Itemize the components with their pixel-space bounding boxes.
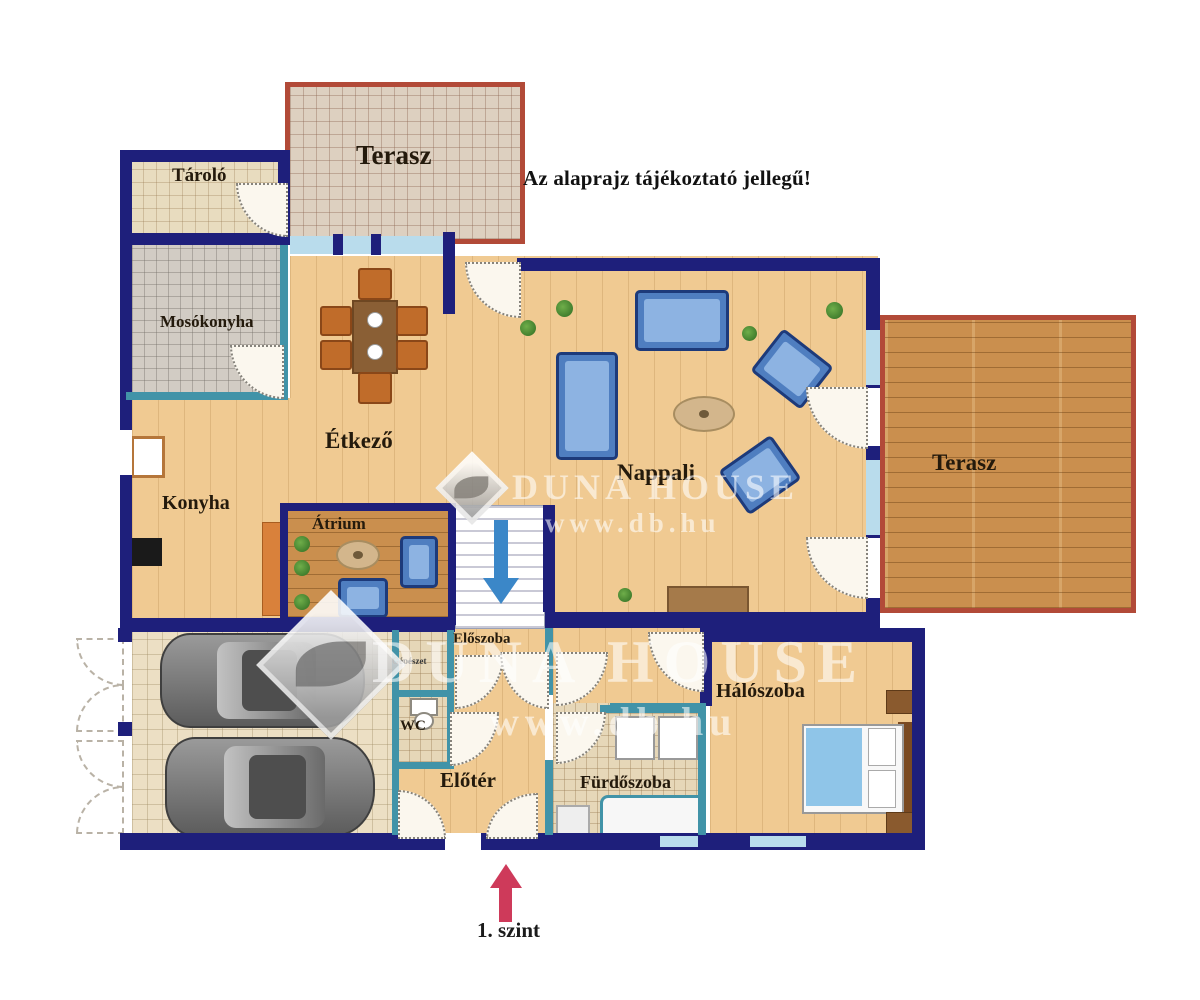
dining-chair bbox=[358, 268, 392, 300]
wall-bedroom-top bbox=[700, 628, 925, 642]
room-label-atrium: Átrium bbox=[312, 514, 366, 534]
bed-blanket bbox=[806, 728, 862, 806]
wall-living-bottom bbox=[545, 612, 880, 628]
plant bbox=[294, 560, 310, 576]
room-label-wc: WC bbox=[400, 718, 426, 735]
floor-plan: Az alaprajz tájékoztató jellegű! Terasz … bbox=[0, 0, 1200, 1000]
terrace-right-floor bbox=[880, 315, 1136, 613]
wall-top-main bbox=[517, 258, 880, 271]
room-label-terrace-top: Terasz bbox=[356, 140, 432, 171]
room-label-hallway: Előszoba bbox=[453, 631, 511, 648]
atrium-chair-seat bbox=[409, 545, 429, 579]
mech-wc-overlay bbox=[398, 632, 448, 762]
garage-door-swing bbox=[76, 638, 124, 686]
room-label-foyer: Előtér bbox=[440, 768, 496, 793]
window-living-right bbox=[866, 460, 880, 535]
stove bbox=[132, 538, 162, 566]
window-band-terrace bbox=[290, 236, 443, 254]
room-label-laundry: Mosókonyha bbox=[160, 312, 254, 332]
sofa-seat bbox=[565, 361, 609, 451]
kitchen-counter bbox=[262, 522, 282, 616]
wall-bath-right bbox=[698, 703, 706, 835]
room-label-dining: Étkező bbox=[325, 428, 393, 454]
wall-foyer-right-lower bbox=[545, 760, 553, 835]
plant bbox=[294, 594, 310, 610]
plate bbox=[367, 312, 383, 328]
garage-post bbox=[118, 722, 132, 736]
room-label-bedroom: Hálószoba bbox=[716, 680, 805, 703]
nightstand bbox=[886, 690, 914, 714]
bath-sink bbox=[615, 716, 655, 760]
wall-bedroom-right bbox=[912, 628, 925, 850]
atrium-chair bbox=[400, 536, 438, 588]
window-bottom bbox=[750, 836, 806, 847]
plate bbox=[367, 344, 383, 360]
dining-chair bbox=[320, 306, 352, 336]
window-living-right bbox=[866, 330, 880, 385]
wall-mech-wc-divider bbox=[392, 690, 454, 697]
stairs-down-arrow-head bbox=[483, 578, 519, 604]
plant bbox=[618, 588, 632, 602]
dining-chair bbox=[320, 340, 352, 370]
level-arrow-stem bbox=[499, 886, 512, 922]
wall-stairs-right bbox=[543, 505, 555, 612]
pillow bbox=[868, 770, 896, 808]
pillow bbox=[868, 728, 896, 766]
door-opening-right bbox=[866, 538, 880, 598]
room-label-bathroom: Fürdőszoba bbox=[580, 772, 671, 793]
wall-storage-top bbox=[120, 150, 290, 162]
level-label: 1. szint bbox=[477, 918, 540, 943]
room-label-storage: Tároló bbox=[172, 165, 227, 187]
sofa-seat bbox=[644, 299, 720, 342]
entry-opening bbox=[445, 833, 481, 850]
coffee-table bbox=[673, 396, 735, 432]
room-label-terrace-right: Terasz bbox=[932, 450, 996, 476]
dining-chair bbox=[396, 340, 428, 370]
brand-logo-swoosh bbox=[455, 476, 489, 498]
window-mullion bbox=[333, 234, 343, 255]
atrium-wall-top bbox=[280, 503, 456, 511]
atrium-wall-right bbox=[448, 503, 456, 625]
plant bbox=[556, 300, 573, 317]
dining-table bbox=[352, 300, 398, 374]
atrium-chair-seat bbox=[347, 587, 379, 609]
atrium-wall-left bbox=[280, 503, 288, 625]
wall-storage-divider bbox=[120, 233, 290, 245]
plant bbox=[294, 536, 310, 552]
level-arrow-head bbox=[490, 864, 522, 888]
plant bbox=[826, 302, 843, 319]
disclaimer-note: Az alaprajz tájékoztató jellegű! bbox=[523, 166, 811, 191]
room-label-living: Nappali bbox=[617, 460, 695, 486]
car bbox=[165, 737, 375, 837]
kitchen-sink bbox=[131, 436, 165, 478]
bath-sink bbox=[658, 716, 698, 760]
garage-door-swing bbox=[76, 684, 124, 732]
atrium-table bbox=[336, 540, 380, 570]
window-mullion bbox=[371, 234, 381, 255]
plant bbox=[742, 326, 757, 341]
brand-logo-swoosh bbox=[296, 641, 366, 686]
room-label-kitchen: Konyha bbox=[162, 492, 230, 515]
garage-door-swing bbox=[76, 786, 124, 834]
wall-bath-top bbox=[610, 703, 703, 711]
dining-chair bbox=[396, 306, 428, 336]
table-center bbox=[699, 410, 709, 418]
dining-chair bbox=[358, 372, 392, 404]
wall-post-terrace bbox=[443, 232, 455, 314]
door-opening-right bbox=[866, 388, 880, 446]
sofa-large bbox=[635, 290, 729, 351]
window-bottom bbox=[660, 836, 698, 847]
sofa-side bbox=[556, 352, 618, 460]
garage-door-swing bbox=[76, 740, 124, 788]
table-center bbox=[353, 551, 363, 559]
stairs-down-arrow bbox=[494, 520, 508, 580]
kitchen-window-opening bbox=[120, 430, 132, 475]
car-roof bbox=[249, 755, 306, 819]
plant bbox=[520, 320, 536, 336]
garage-post bbox=[118, 628, 132, 642]
